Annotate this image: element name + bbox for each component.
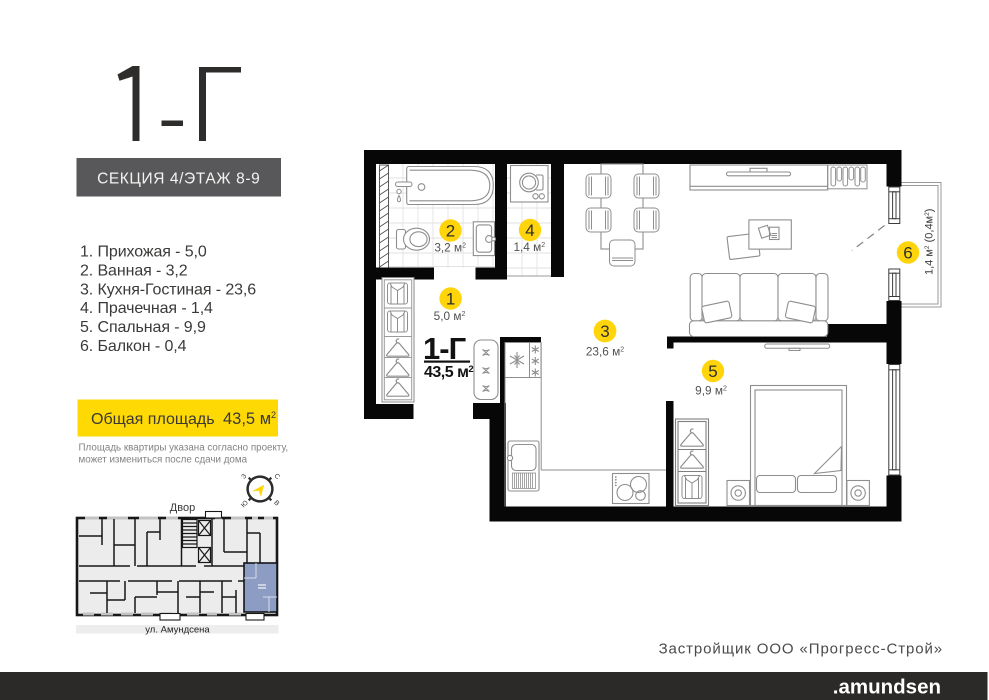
svg-text:Общая площадь: Общая площадь: [91, 411, 215, 428]
svg-text:Ю: Ю: [240, 499, 250, 509]
svg-text:.amundsen: .amundsen: [833, 676, 941, 699]
svg-text:43,5 м2: 43,5 м2: [424, 364, 473, 381]
svg-text:6. Балкон - 0,4: 6. Балкон - 0,4: [80, 338, 187, 355]
svg-text:1: 1: [446, 290, 455, 309]
svg-text:1,4 м2: 1,4 м2: [513, 240, 545, 254]
svg-text:4: 4: [525, 221, 534, 240]
svg-text:СЕКЦИЯ 4/ЭТАЖ 8-9: СЕКЦИЯ 4/ЭТАЖ 8-9: [97, 171, 260, 188]
svg-text:3: 3: [600, 322, 609, 341]
svg-text:ул. Амундсена: ул. Амундсена: [145, 625, 210, 636]
svg-text:6: 6: [903, 244, 912, 263]
svg-text:1,4 м2 (0,4м2): 1,4 м2 (0,4м2): [924, 209, 936, 275]
svg-text:5,0 м2: 5,0 м2: [434, 309, 466, 323]
svg-text:З: З: [240, 473, 248, 481]
svg-text:Застройщик ООО «Прогресс-Строй: Застройщик ООО «Прогресс-Строй»: [659, 641, 943, 658]
svg-text:3. Кухня-Гостиная - 23,6: 3. Кухня-Гостиная - 23,6: [80, 282, 256, 299]
svg-text:9,9 м2: 9,9 м2: [695, 383, 727, 397]
svg-text:4. Прачечная - 1,4: 4. Прачечная - 1,4: [80, 300, 213, 317]
svg-text:Площадь квартиры указана согла: Площадь квартиры указана согласно проект…: [79, 443, 289, 454]
svg-text:может измениться после сдачи: может измениться после сдачи дома: [79, 455, 248, 466]
svg-text:43,5 м2: 43,5 м2: [223, 410, 276, 428]
svg-text:5: 5: [708, 362, 717, 381]
svg-text:С: С: [272, 473, 280, 481]
svg-text:5. Спальная - 9,9: 5. Спальная - 9,9: [80, 319, 206, 336]
svg-text:3,2 м2: 3,2 м2: [434, 241, 466, 255]
svg-text:Двор: Двор: [170, 502, 195, 514]
svg-text:2: 2: [446, 222, 455, 241]
svg-text:23,6 м2: 23,6 м2: [586, 344, 624, 358]
svg-text:В: В: [272, 499, 280, 507]
svg-text:2. Ванная - 3,2: 2. Ванная - 3,2: [80, 263, 188, 280]
svg-text:1. Прихожая - 5,0: 1. Прихожая - 5,0: [80, 244, 207, 261]
